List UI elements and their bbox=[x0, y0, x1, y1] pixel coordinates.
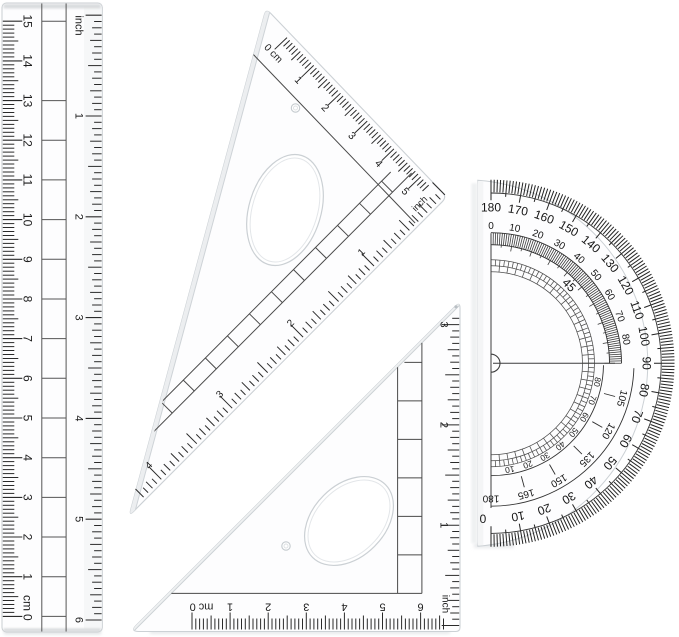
svg-text:12: 12 bbox=[21, 134, 35, 148]
svg-text:inch: inch bbox=[440, 595, 451, 613]
svg-text:4: 4 bbox=[72, 415, 84, 421]
svg-text:2: 2 bbox=[438, 422, 450, 428]
svg-text:11: 11 bbox=[21, 174, 35, 187]
svg-text:14: 14 bbox=[21, 54, 35, 68]
svg-text:10: 10 bbox=[504, 464, 515, 476]
svg-text:90: 90 bbox=[640, 357, 654, 371]
svg-text:mc 0: mc 0 bbox=[190, 601, 214, 613]
svg-text:80: 80 bbox=[592, 376, 604, 387]
svg-text:6: 6 bbox=[418, 601, 424, 613]
svg-text:5: 5 bbox=[21, 415, 35, 422]
svg-text:4: 4 bbox=[341, 601, 347, 613]
svg-text:3: 3 bbox=[21, 494, 35, 501]
svg-text:9: 9 bbox=[21, 256, 35, 263]
svg-text:5: 5 bbox=[379, 601, 385, 613]
svg-text:0: 0 bbox=[488, 221, 494, 232]
svg-text:3: 3 bbox=[438, 322, 450, 328]
svg-text:4: 4 bbox=[21, 454, 35, 461]
svg-text:10: 10 bbox=[510, 508, 526, 524]
svg-text:6: 6 bbox=[72, 617, 84, 623]
svg-text:15: 15 bbox=[21, 15, 35, 29]
svg-text:5: 5 bbox=[72, 516, 84, 522]
svg-text:1: 1 bbox=[438, 522, 450, 528]
svg-text:80: 80 bbox=[636, 382, 652, 398]
svg-text:1: 1 bbox=[227, 601, 233, 613]
svg-text:13: 13 bbox=[21, 94, 35, 108]
svg-text:0: 0 bbox=[479, 512, 486, 526]
svg-text:1: 1 bbox=[72, 113, 84, 119]
svg-text:2: 2 bbox=[21, 534, 35, 541]
svg-text:0: 0 bbox=[21, 614, 35, 621]
svg-text:6: 6 bbox=[21, 375, 35, 382]
svg-text:2: 2 bbox=[72, 214, 84, 220]
svg-text:3: 3 bbox=[303, 601, 309, 613]
svg-text:inch: inch bbox=[72, 15, 84, 35]
svg-text:8: 8 bbox=[21, 296, 35, 303]
svg-text:180: 180 bbox=[481, 201, 501, 215]
svg-text:cm: cm bbox=[21, 595, 35, 611]
svg-text:2: 2 bbox=[265, 601, 271, 613]
svg-text:3: 3 bbox=[72, 315, 84, 321]
svg-text:10: 10 bbox=[21, 213, 35, 227]
svg-text:7: 7 bbox=[21, 335, 35, 342]
svg-text:1: 1 bbox=[21, 573, 35, 580]
